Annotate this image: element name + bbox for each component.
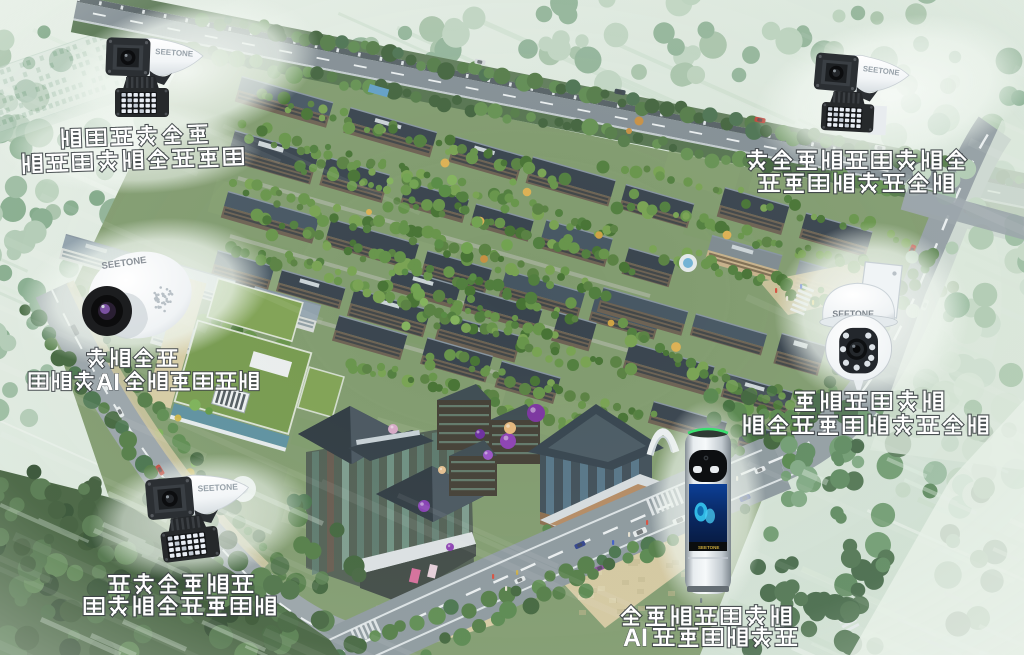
svg-text:SEETONE: SEETONE — [698, 545, 719, 550]
svg-text:AI: AI — [96, 369, 120, 396]
svg-text:AI: AI — [623, 624, 648, 652]
svg-text:SEETONE: SEETONE — [197, 481, 238, 493]
